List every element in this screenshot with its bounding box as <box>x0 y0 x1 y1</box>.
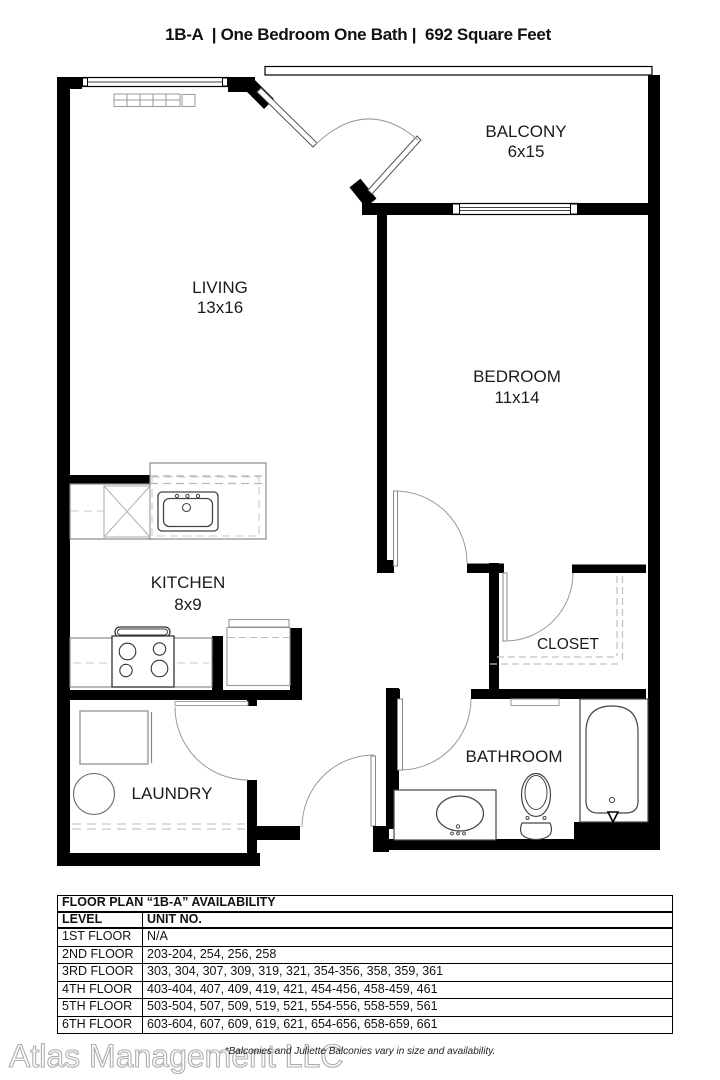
svg-text:KITCHEN: KITCHEN <box>151 573 226 592</box>
svg-text:BALCONY: BALCONY <box>485 122 566 141</box>
svg-text:BEDROOM: BEDROOM <box>473 367 561 386</box>
svg-text:LAUNDRY: LAUNDRY <box>132 784 213 803</box>
svg-text:CLOSET: CLOSET <box>537 636 600 653</box>
svg-text:13x16: 13x16 <box>197 298 243 317</box>
svg-text:8x9: 8x9 <box>174 595 201 614</box>
svg-text:6x15: 6x15 <box>508 142 545 161</box>
svg-text:BATHROOM: BATHROOM <box>466 747 563 766</box>
svg-text:LIVING: LIVING <box>192 278 248 297</box>
svg-text:11x14: 11x14 <box>494 388 539 407</box>
